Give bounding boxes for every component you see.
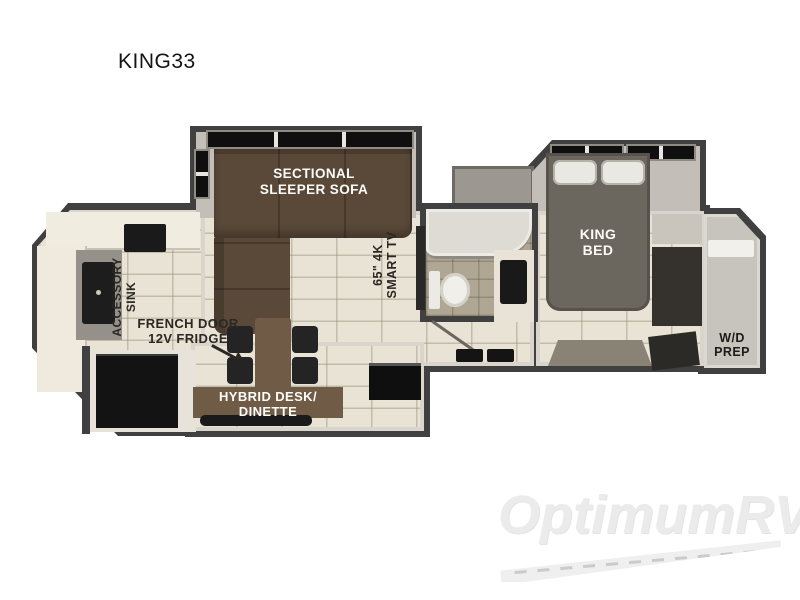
entry-steps: [369, 363, 421, 400]
watermark-road-graphic: [500, 540, 783, 584]
fridge-label: FRENCH DOOR 12V FRIDGE: [113, 317, 263, 347]
tv-label-line2: SMART TV: [385, 205, 399, 325]
king-bed-label-line1: KING: [548, 226, 648, 242]
bed-pillow: [553, 160, 597, 185]
floorplan-title: KING33: [118, 50, 196, 74]
tv-panel: [416, 226, 425, 310]
closet-shelf: [708, 240, 754, 257]
bedroom-wardrobe: [652, 247, 702, 326]
bath-sink: [500, 260, 527, 304]
sofa-label: SECTIONAL SLEEPER SOFA: [234, 166, 394, 197]
dinette-chair: [292, 357, 318, 384]
sofa-slide-window: [208, 132, 412, 147]
dinette-label-line2: DINETTE: [193, 405, 343, 420]
optimumrv-watermark-text: OptimumRV: [498, 484, 800, 546]
tv-label: 65" 4K SMART TV: [371, 205, 407, 325]
toilet-bowl: [440, 273, 470, 307]
dinette-chair: [292, 326, 318, 353]
bed-pillow: [601, 160, 645, 185]
sink-faucet-dot: [96, 290, 101, 295]
entry-mat: [456, 349, 483, 362]
fridge-partition-wall: [82, 346, 90, 434]
fridge-label-line2: 12V FRIDGE: [113, 332, 263, 347]
sofa-slide-corner-window: [196, 151, 208, 197]
optimumrv-watermark: OptimumRV: [498, 478, 796, 593]
bedroom-bench: [548, 340, 652, 366]
king-bed-label: KING BED: [548, 226, 648, 258]
sofa-label-line2: SLEEPER SOFA: [234, 182, 394, 198]
bedroom-tv: [648, 331, 700, 371]
watermark-road-dashes: [514, 549, 773, 575]
dinette-label-line1: HYBRID DESK/: [193, 390, 343, 405]
fridge-label-line1: FRENCH DOOR: [113, 317, 263, 332]
wd-prep-label: W/D PREP: [700, 331, 764, 360]
sofa-label-line1: SECTIONAL: [234, 166, 394, 182]
fridge: [96, 354, 178, 428]
entry-mat: [487, 349, 514, 362]
dinette-label: HYBRID DESK/ DINETTE: [193, 390, 343, 420]
toilet-tank: [429, 271, 440, 309]
wd-prep-label-line2: PREP: [700, 345, 764, 359]
king-bed-label-line2: BED: [548, 242, 648, 258]
bed-slide-endcap: [452, 166, 534, 208]
tv-label-line1: 65" 4K: [371, 205, 385, 325]
wd-prep-label-line1: W/D: [700, 331, 764, 345]
bedroom-cabinet: [652, 214, 702, 244]
